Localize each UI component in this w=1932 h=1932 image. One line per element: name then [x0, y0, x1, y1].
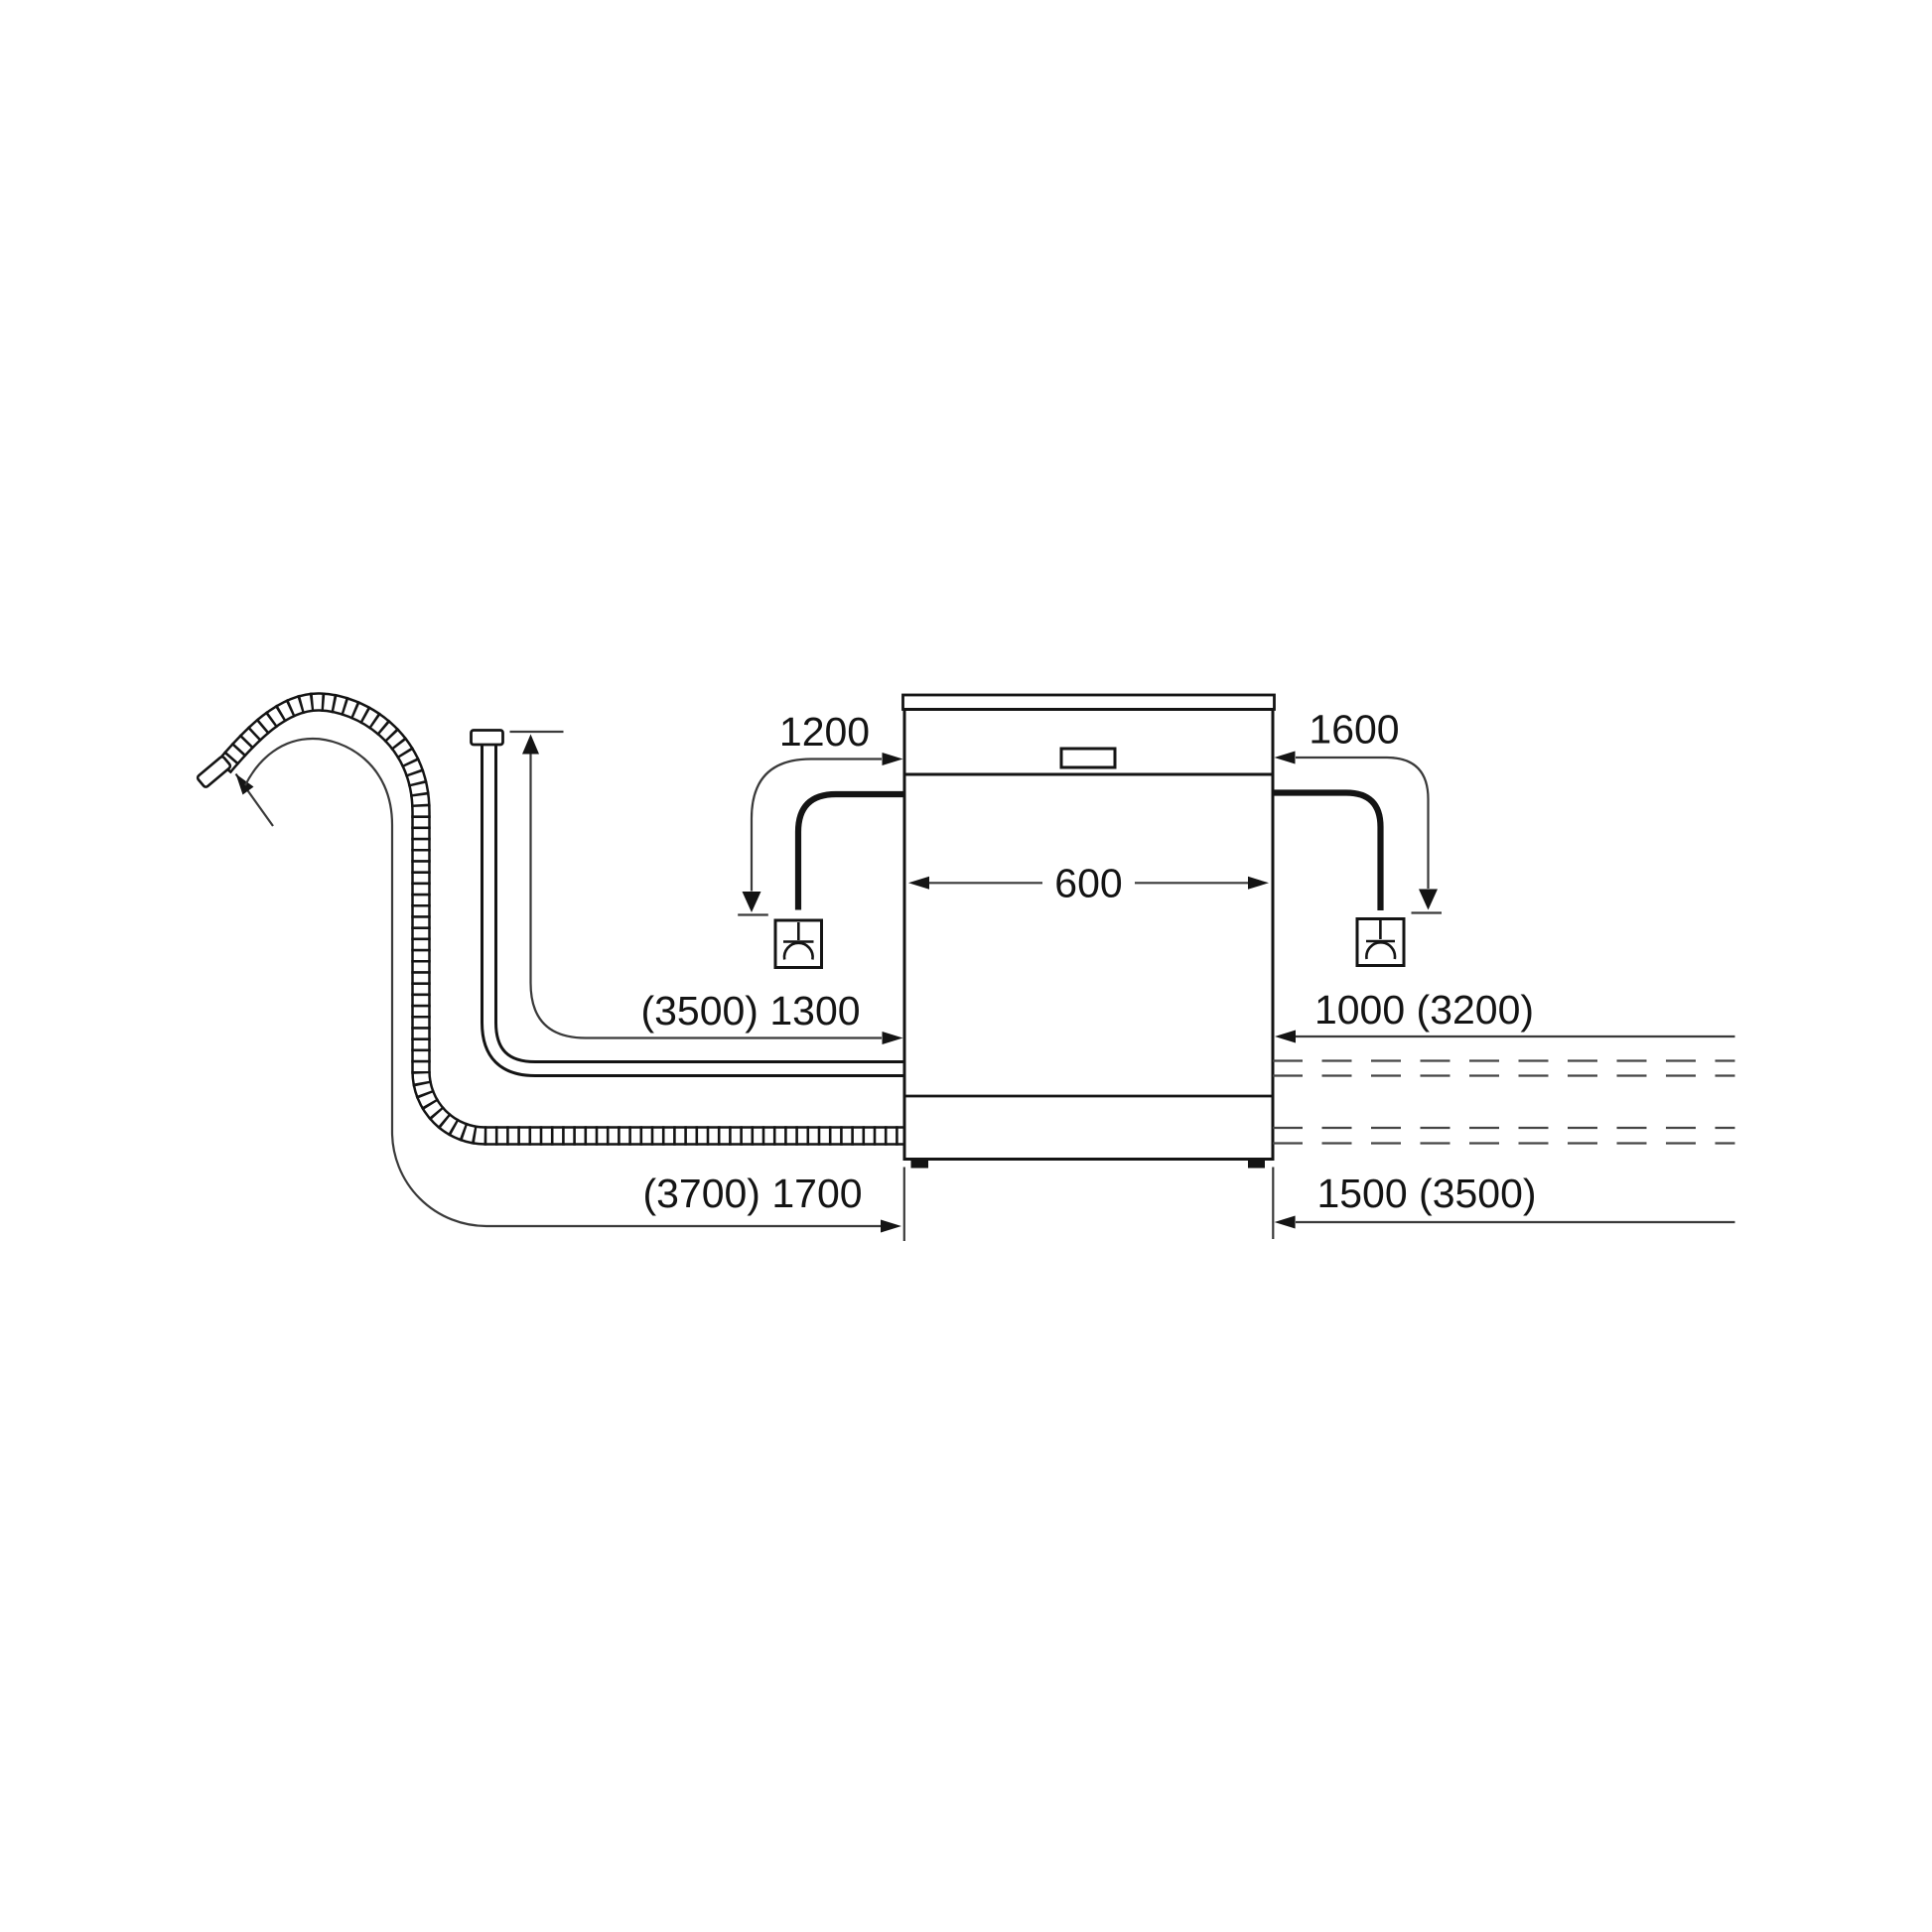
svg-text:1000 (3200): 1000 (3200)	[1314, 987, 1534, 1033]
svg-text:(3500) 1300: (3500) 1300	[640, 988, 860, 1034]
svg-text:(3700) 1700: (3700) 1700	[642, 1171, 862, 1216]
svg-text:1600: 1600	[1309, 707, 1399, 753]
svg-text:600: 600	[1054, 861, 1122, 906]
svg-text:1200: 1200	[779, 709, 870, 755]
svg-text:1500 (3500): 1500 (3500)	[1316, 1171, 1536, 1216]
